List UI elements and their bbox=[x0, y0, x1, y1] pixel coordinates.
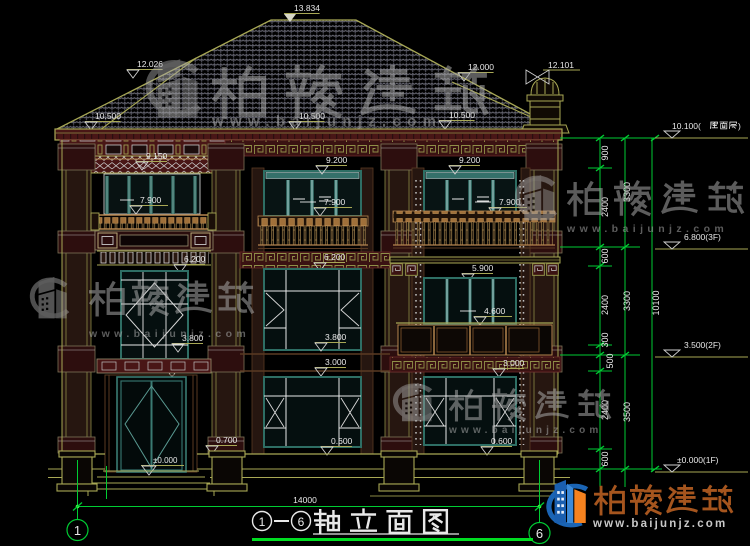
svg-text:9.200: 9.200 bbox=[459, 155, 481, 165]
svg-text:0.600: 0.600 bbox=[331, 436, 353, 446]
svg-text:www.baijunjz.com: www.baijunjz.com bbox=[566, 223, 728, 235]
svg-text:7.900: 7.900 bbox=[324, 197, 346, 207]
svg-text:1: 1 bbox=[74, 523, 81, 538]
svg-text:6: 6 bbox=[536, 526, 543, 541]
svg-text:www.baijunjz.com: www.baijunjz.com bbox=[448, 425, 603, 436]
svg-text:14000: 14000 bbox=[293, 495, 317, 505]
svg-text:3.000: 3.000 bbox=[503, 358, 525, 368]
svg-text:0.600: 0.600 bbox=[491, 436, 513, 446]
svg-text:600: 600 bbox=[600, 451, 610, 466]
svg-text:www.baijunjz.com: www.baijunjz.com bbox=[592, 518, 727, 530]
svg-text:5.900: 5.900 bbox=[472, 263, 494, 273]
svg-text:www.baijunjz.com: www.baijunjz.com bbox=[211, 113, 442, 130]
svg-text:13.834: 13.834 bbox=[294, 3, 320, 13]
svg-text:300: 300 bbox=[600, 332, 610, 347]
svg-text:3.500(2F): 3.500(2F) bbox=[684, 340, 721, 350]
svg-text:500: 500 bbox=[605, 353, 615, 368]
svg-text:±0.000(1F): ±0.000(1F) bbox=[677, 455, 719, 465]
svg-text:www.baijunjz.com: www.baijunjz.com bbox=[88, 328, 250, 340]
svg-text:10100: 10100 bbox=[651, 290, 661, 315]
svg-text:3.000: 3.000 bbox=[325, 357, 347, 367]
svg-text:900: 900 bbox=[600, 145, 610, 160]
svg-text:10.100(: 10.100( bbox=[672, 121, 701, 131]
svg-text:4.600: 4.600 bbox=[484, 306, 506, 316]
svg-text:9.150: 9.150 bbox=[146, 151, 168, 161]
svg-text:3500: 3500 bbox=[622, 402, 632, 422]
svg-text:0.700: 0.700 bbox=[216, 435, 238, 445]
svg-text:7.900: 7.900 bbox=[140, 195, 162, 205]
svg-text:12.101: 12.101 bbox=[548, 60, 574, 70]
svg-text:600: 600 bbox=[600, 248, 610, 263]
svg-text:9.200: 9.200 bbox=[326, 155, 348, 165]
svg-text:): ) bbox=[738, 121, 741, 131]
svg-text:3.800: 3.800 bbox=[325, 332, 347, 342]
svg-text:10.500: 10.500 bbox=[95, 111, 121, 121]
svg-text:6.200: 6.200 bbox=[324, 252, 346, 262]
svg-text:2400: 2400 bbox=[600, 295, 610, 315]
svg-text:6: 6 bbox=[298, 515, 305, 529]
svg-text:3300: 3300 bbox=[622, 291, 632, 311]
svg-text:±0.000: ±0.000 bbox=[153, 456, 178, 465]
svg-text:6.200: 6.200 bbox=[184, 254, 206, 264]
svg-text:1: 1 bbox=[259, 515, 266, 529]
